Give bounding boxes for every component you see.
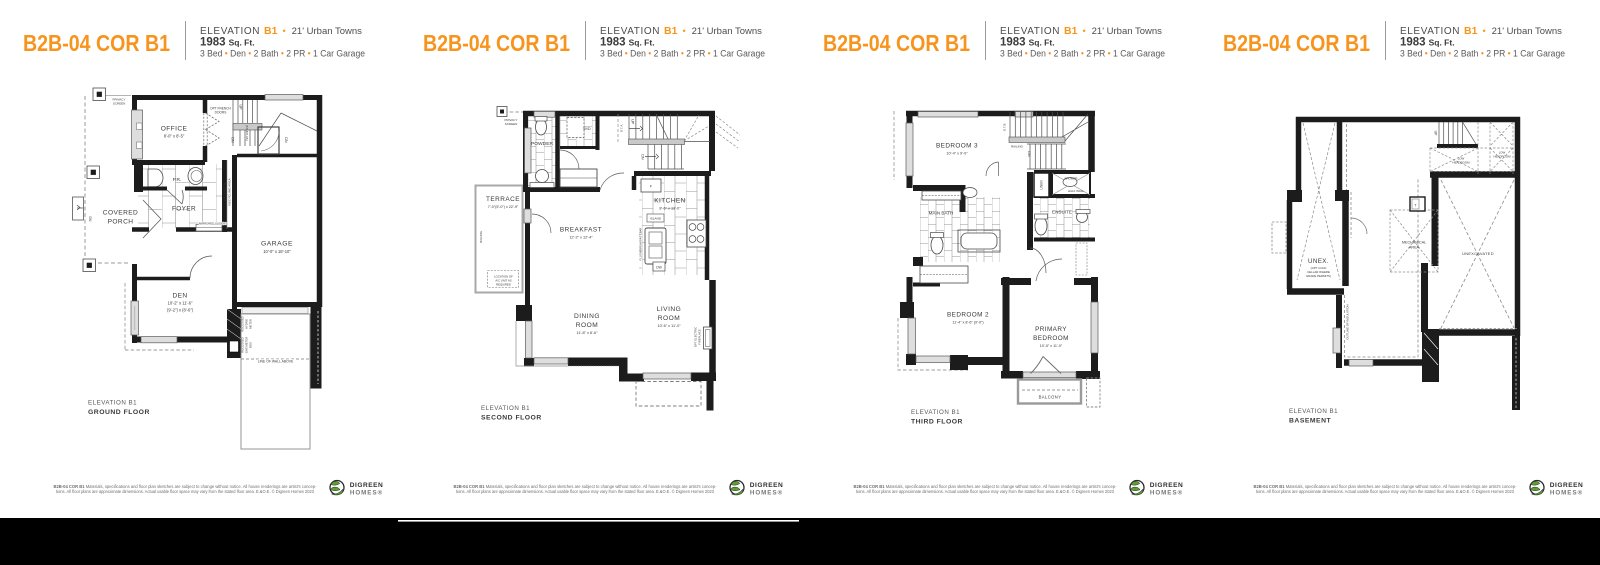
svg-text:BOX: BOX (249, 342, 253, 348)
svg-text:tions. All floor plans are app: tions. All floor plans are approximate d… (56, 489, 315, 494)
svg-text:BEDROOM 2: BEDROOM 2 (947, 312, 989, 319)
svg-text:3 Bed • Den • 2 Bath • 2 PR •: 3 Bed • Den • 2 Bath • 2 PR • 1 Car Gara… (200, 49, 365, 60)
svg-text:BEDROOM 3: BEDROOM 3 (936, 143, 978, 150)
svg-text:ROOM: ROOM (658, 315, 681, 322)
svg-text:8'-0" x 8'-5": 8'-0" x 8'-5" (164, 133, 185, 138)
svg-text:DW: DW (656, 265, 662, 269)
svg-text:RECYCLING AREA: RECYCLING AREA (228, 177, 232, 205)
svg-text:RAILING: RAILING (1011, 145, 1024, 149)
svg-text:TERRACE: TERRACE (486, 196, 520, 203)
svg-text:11'-8" x 8'-6": 11'-8" x 8'-6" (577, 331, 599, 335)
svg-text:11'-4" x 8'-6" (9'-0"): 11'-4" x 8'-6" (9'-0") (952, 321, 983, 325)
svg-text:REQUIRED: REQUIRED (496, 283, 511, 287)
svg-text:(STAIRS AB.): (STAIRS AB.) (245, 125, 249, 141)
svg-text:GRADE PERMITS): GRADE PERMITS) (1306, 274, 1331, 278)
svg-text:AREA: AREA (1409, 246, 1420, 250)
svg-text:MECHANICAL: MECHANICAL (1402, 241, 1426, 245)
svg-text:DN: DN (641, 154, 645, 160)
svg-text:OFFICE: OFFICE (161, 126, 188, 133)
svg-text:FOYER: FOYER (172, 206, 196, 213)
svg-text:HALF WALL: HALF WALL (1068, 189, 1084, 193)
svg-text:BREAKFAST: BREAKFAST (560, 227, 602, 234)
svg-text:KITCHEN: KITCHEN (654, 198, 686, 205)
svg-text:10'-0" x 18'-10": 10'-0" x 18'-10" (263, 249, 291, 254)
svg-text:B2B-04 COR B1: B2B-04 COR B1 (23, 30, 170, 56)
svg-text:O.T.B.: O.T.B. (1003, 123, 1007, 132)
svg-text:HEADROOM: HEADROOM (1493, 155, 1511, 159)
svg-text:SHOWER: SHOWER (1064, 177, 1077, 181)
svg-text:DN: DN (88, 217, 92, 222)
svg-text:ENSUITE: ENSUITE (1052, 210, 1072, 215)
svg-text:MIRRORED SLIDERS: MIRRORED SLIDERS (199, 221, 227, 225)
svg-text:POWDER: POWDER (531, 141, 554, 147)
svg-text:SCREEN: SCREEN (113, 101, 126, 105)
svg-text:PORCH: PORCH (108, 219, 134, 226)
svg-text:DINING: DINING (574, 313, 600, 320)
svg-text:LINE OF WALL ABOVE: LINE OF WALL ABOVE (258, 359, 294, 363)
svg-text:ELEVATION B1: ELEVATION B1 (88, 400, 137, 407)
svg-text:OUTLINE OF INSULATION: OUTLINE OF INSULATION (1346, 304, 1350, 339)
svg-text:COVERED: COVERED (103, 210, 138, 217)
svg-text:ELEVATION B1: ELEVATION B1 (481, 405, 530, 412)
svg-text:HEADROOM: HEADROOM (1452, 161, 1470, 165)
svg-text:10'-4" x 9'-0": 10'-4" x 9'-0" (946, 152, 968, 156)
svg-text:METER: METER (249, 319, 253, 329)
svg-text:FIREPLACE: FIREPLACE (698, 329, 702, 345)
svg-text:DIGREEN: DIGREEN (350, 482, 384, 489)
svg-text:GARAGE: GARAGE (261, 241, 293, 248)
svg-text:DEN: DEN (172, 293, 187, 300)
svg-text:ISLAND: ISLAND (650, 217, 662, 221)
svg-text:UP: UP (631, 119, 635, 125)
svg-text:BEDROOM: BEDROOM (1033, 335, 1069, 342)
svg-text:DOORS: DOORS (215, 111, 227, 115)
svg-text:DN: DN (1027, 151, 1031, 157)
svg-text:RAILING: RAILING (479, 230, 483, 243)
svg-text:8'-6" x 13'-0": 8'-6" x 13'-0" (659, 207, 681, 211)
svg-text:O.T.A.: O.T.A. (620, 124, 624, 133)
svg-text:MAIN BATH: MAIN BATH (929, 211, 954, 216)
svg-text:LIVING: LIVING (657, 306, 682, 313)
svg-text:UNEXCAVATED: UNEXCAVATED (1462, 251, 1494, 256)
svg-text:10'-2" x 11'-6": 10'-2" x 11'-6" (168, 301, 193, 306)
svg-text:GARBAGE &: GARBAGE & (223, 182, 227, 201)
svg-text:THIRD FLOOR: THIRD FLOOR (911, 419, 963, 426)
svg-text:(9'-2") x (8'-6"): (9'-2") x (8'-6") (167, 308, 194, 313)
svg-text:DN: DN (284, 137, 288, 143)
svg-text:10'-6" x 11'-0": 10'-6" x 11'-0" (657, 324, 681, 328)
svg-text:10'-5" x 11'-0": 10'-5" x 11'-0" (1040, 344, 1063, 348)
svg-text:UP: UP (239, 105, 243, 111)
svg-text:FLUSH BREAKFAST BAR: FLUSH BREAKFAST BAR (639, 228, 643, 261)
svg-text:7'-0"(5'-0") x 22'-9": 7'-0"(5'-0") x 22'-9" (488, 205, 519, 209)
svg-text:UP: UP (1434, 131, 1438, 136)
svg-text:ROOM: ROOM (576, 322, 599, 329)
svg-text:LINEN: LINEN (1040, 180, 1044, 190)
svg-text:HOMES®: HOMES® (350, 490, 383, 497)
svg-text:BALCONY: BALCONY (1039, 395, 1062, 400)
svg-text:GROUND FLOOR: GROUND FLOOR (88, 409, 150, 416)
svg-text:ELEVATION B1: ELEVATION B1 (911, 409, 960, 416)
svg-text:P.R.: P.R. (173, 177, 182, 183)
svg-text:DN: DN (231, 137, 235, 143)
svg-text:BASEMENT: BASEMENT (1289, 418, 1331, 425)
svg-text:SECOND FLOOR: SECOND FLOOR (481, 415, 542, 422)
svg-text:PRIMARY: PRIMARY (1035, 326, 1067, 333)
svg-text:W/D: W/D (583, 127, 591, 131)
svg-text:12'-2" x 12'-4": 12'-2" x 12'-4" (569, 236, 593, 240)
svg-text:ELEVATION B1: ELEVATION B1 (1289, 408, 1338, 415)
svg-text:UNEX.: UNEX. (1308, 258, 1329, 265)
svg-text:SCREEN: SCREEN (505, 122, 518, 126)
